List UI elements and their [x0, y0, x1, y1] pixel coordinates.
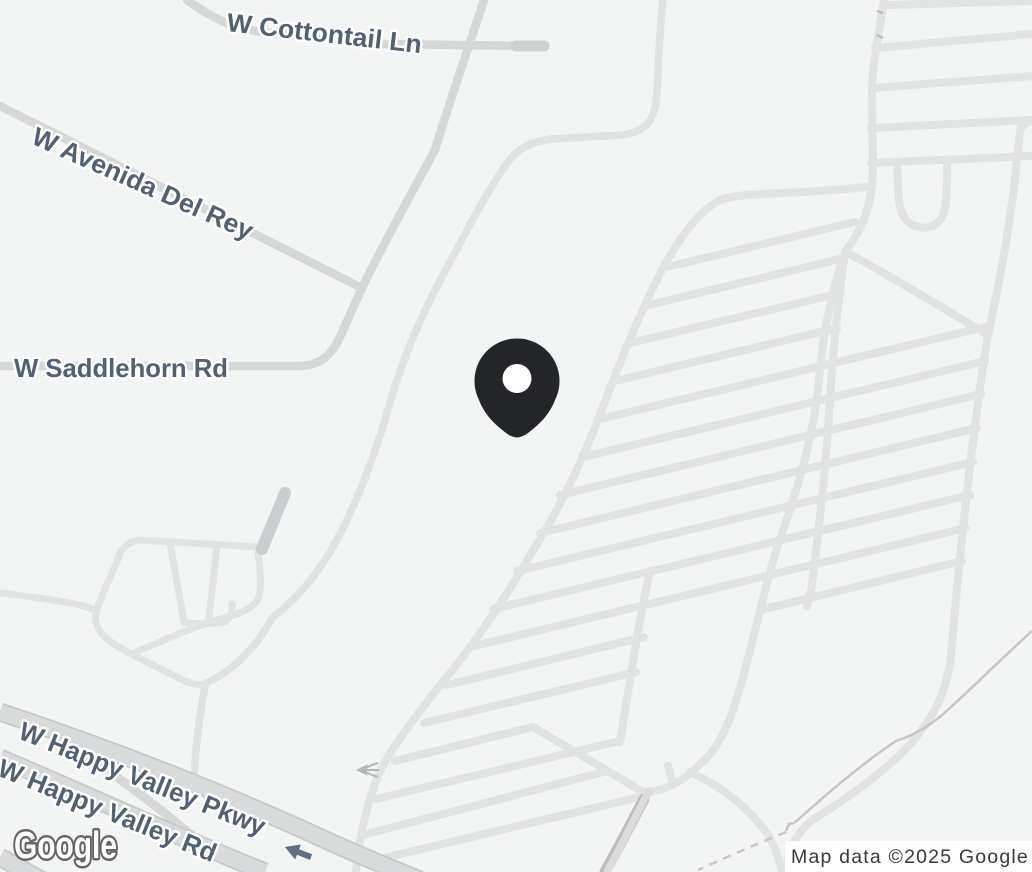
svg-text:W Saddlehorn Rd: W Saddlehorn Rd: [14, 353, 228, 383]
svg-text:Google: Google: [14, 825, 117, 867]
svg-text:Map data ©2025 Google: Map data ©2025 Google: [791, 846, 1029, 868]
